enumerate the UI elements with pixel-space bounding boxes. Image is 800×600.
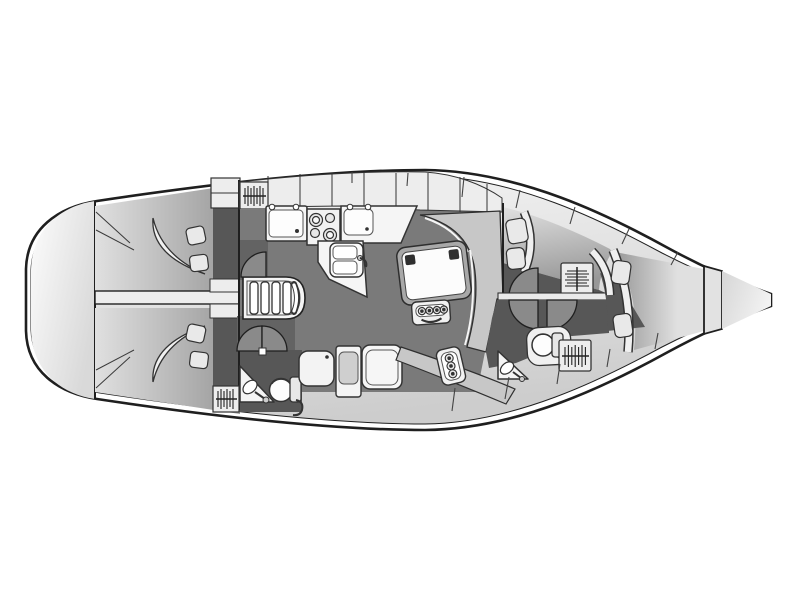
table-corner-pad: [448, 249, 459, 260]
bottle-rack: [411, 300, 451, 326]
sink-hinge: [365, 204, 371, 210]
double-sink-basin: [333, 246, 357, 259]
companionway-stairs: [243, 277, 305, 319]
shower-pan: [299, 351, 334, 386]
pillow: [611, 260, 632, 285]
fwd-centerline-partition: [498, 293, 610, 300]
bow-peak: [722, 271, 771, 329]
sink-hinge: [269, 204, 275, 210]
pillow: [505, 217, 529, 244]
door-hinge: [259, 348, 266, 355]
yacht-floor-plan-page: [0, 0, 800, 600]
pillow: [506, 247, 526, 270]
shower-drain: [325, 355, 329, 359]
saloon-table: [396, 240, 473, 306]
hanging-locker-icon: [213, 386, 239, 412]
counter-sink-basin: [344, 209, 373, 235]
faucet-knob: [520, 377, 525, 382]
yacht-deck-plan-drawing: [0, 0, 800, 600]
pillow: [612, 313, 633, 338]
galley-sink-basin: [269, 210, 303, 237]
pillow: [189, 254, 209, 272]
locker-unit-inset: [339, 352, 358, 384]
faucet-knob: [263, 397, 269, 403]
sink-drain: [365, 227, 369, 231]
toilet-bowl: [270, 379, 293, 402]
pillow: [189, 351, 209, 369]
pillow: [185, 225, 206, 245]
double-sink-basin: [333, 261, 357, 274]
pillow: [185, 323, 206, 343]
sink-hinge: [347, 204, 353, 210]
hanging-locker-icon: [240, 182, 268, 209]
sink-hinge: [293, 204, 299, 210]
anchor-locker: [704, 266, 722, 334]
aft-cabin-divider: [95, 291, 243, 304]
sink-drain: [295, 229, 299, 233]
table-corner-pad: [405, 254, 416, 265]
bow-section: [704, 266, 771, 334]
aft-cabin-port: [95, 178, 240, 292]
